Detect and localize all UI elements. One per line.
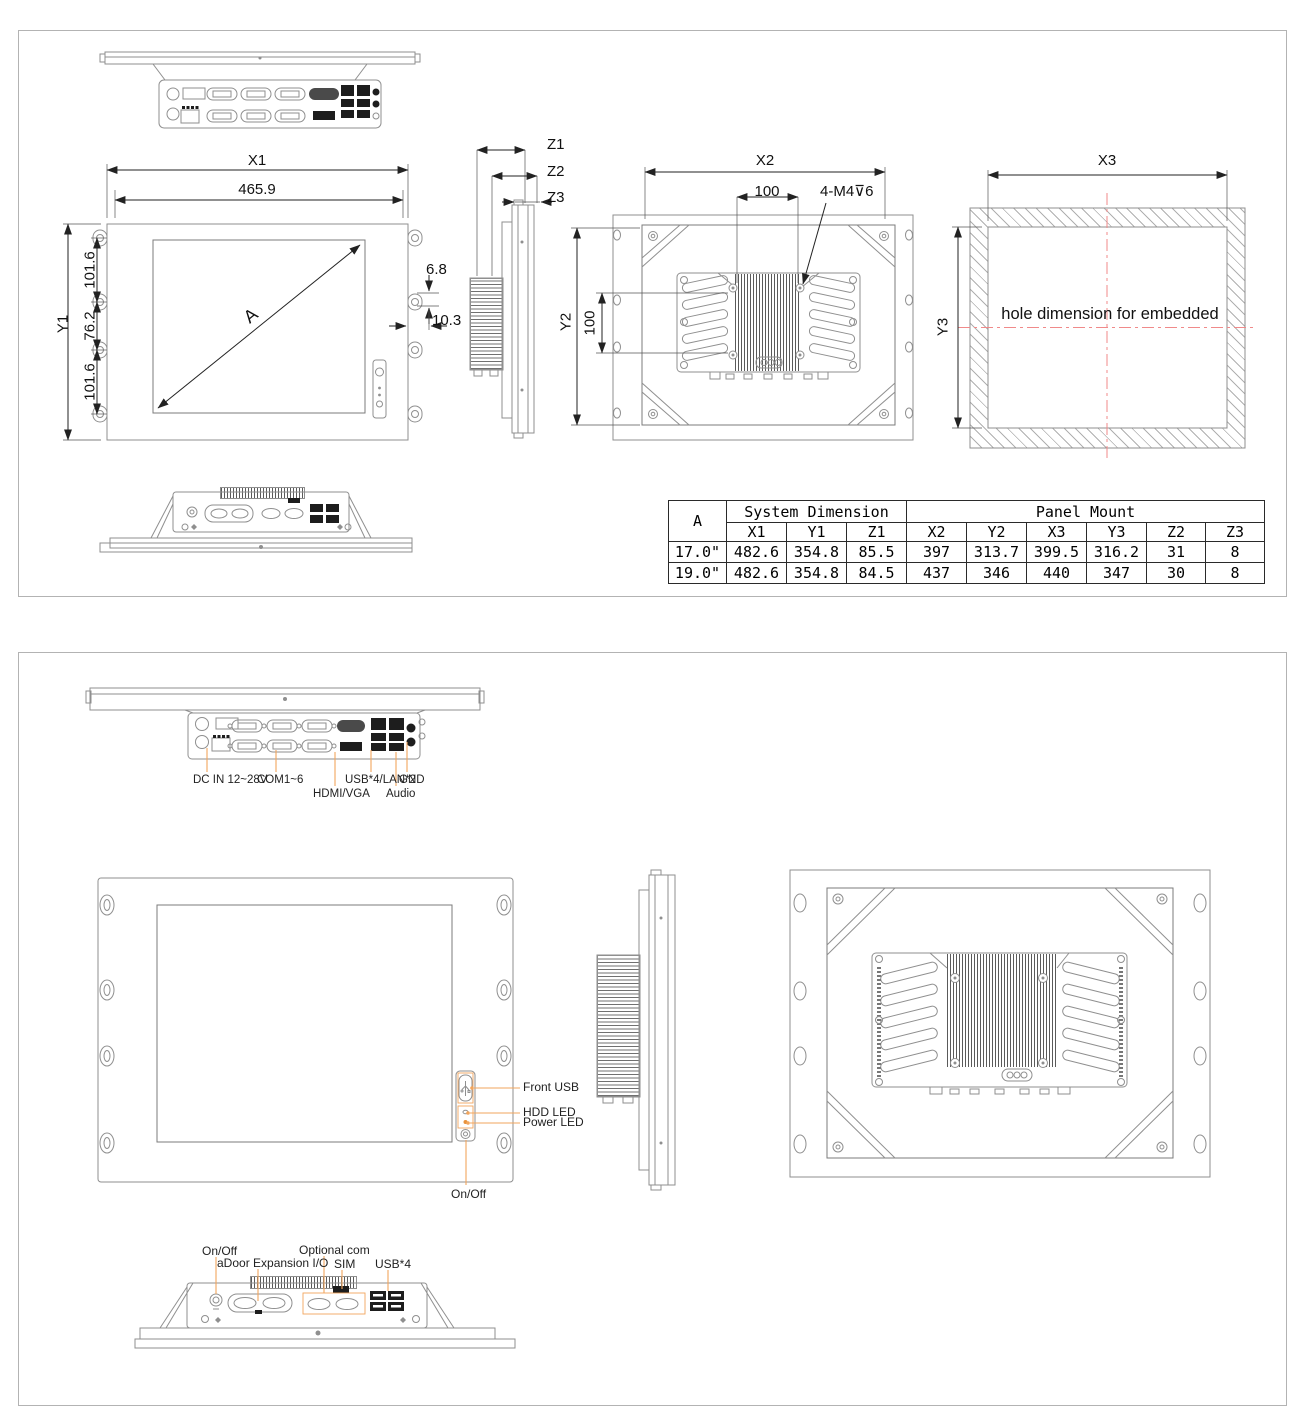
dim-y2: Y2 [559,313,574,331]
drawing-page: A System Dimension Panel Mount X1 Y1 Z1 … [0,0,1305,1424]
label-gnd: GND [399,774,425,787]
label-optional-com: Optional com [299,1244,370,1257]
label-audio: Audio [386,788,415,801]
dim-x2: X2 [756,152,774,169]
label-usb4: USB*4 [375,1258,411,1271]
callout-leader-lines [0,0,1305,1424]
dim-x3: X3 [1098,152,1116,169]
label-com: COM1~6 [257,774,303,787]
dim-z2: Z2 [547,163,565,180]
dim-seg-bot: 101.6 [83,363,98,401]
label-hdmi-vga: HDMI/VGA [313,788,370,801]
dim-x1: X1 [248,152,266,169]
dim-pitch-v: 100 [583,310,598,335]
cutout-note: hole dimension for embedded [1001,306,1218,323]
dim-z3: Z3 [547,189,565,206]
dim-x1-value: 465.9 [238,181,276,198]
dim-y1: Y1 [56,315,71,333]
dim-hook-offset: 6.8 [426,261,447,278]
dim-seg-top: 101.6 [83,251,98,289]
label-front-usb: Front USB [523,1081,579,1094]
label-sim: SIM [334,1258,355,1271]
label-power-led: Power LED [523,1116,584,1129]
label-adoor: aDoor Expansion I/O [217,1257,328,1270]
dim-z1: Z1 [547,136,565,153]
label-on-off-front: On/Off [451,1188,486,1201]
screw-spec-label: 4-M4⊽6 [820,183,874,200]
dim-hook-depth: 10.3 [432,312,461,329]
dim-seg-mid: 76.2 [83,311,98,340]
dim-y3: Y3 [936,318,951,336]
dim-pitch-h: 100 [754,183,779,200]
